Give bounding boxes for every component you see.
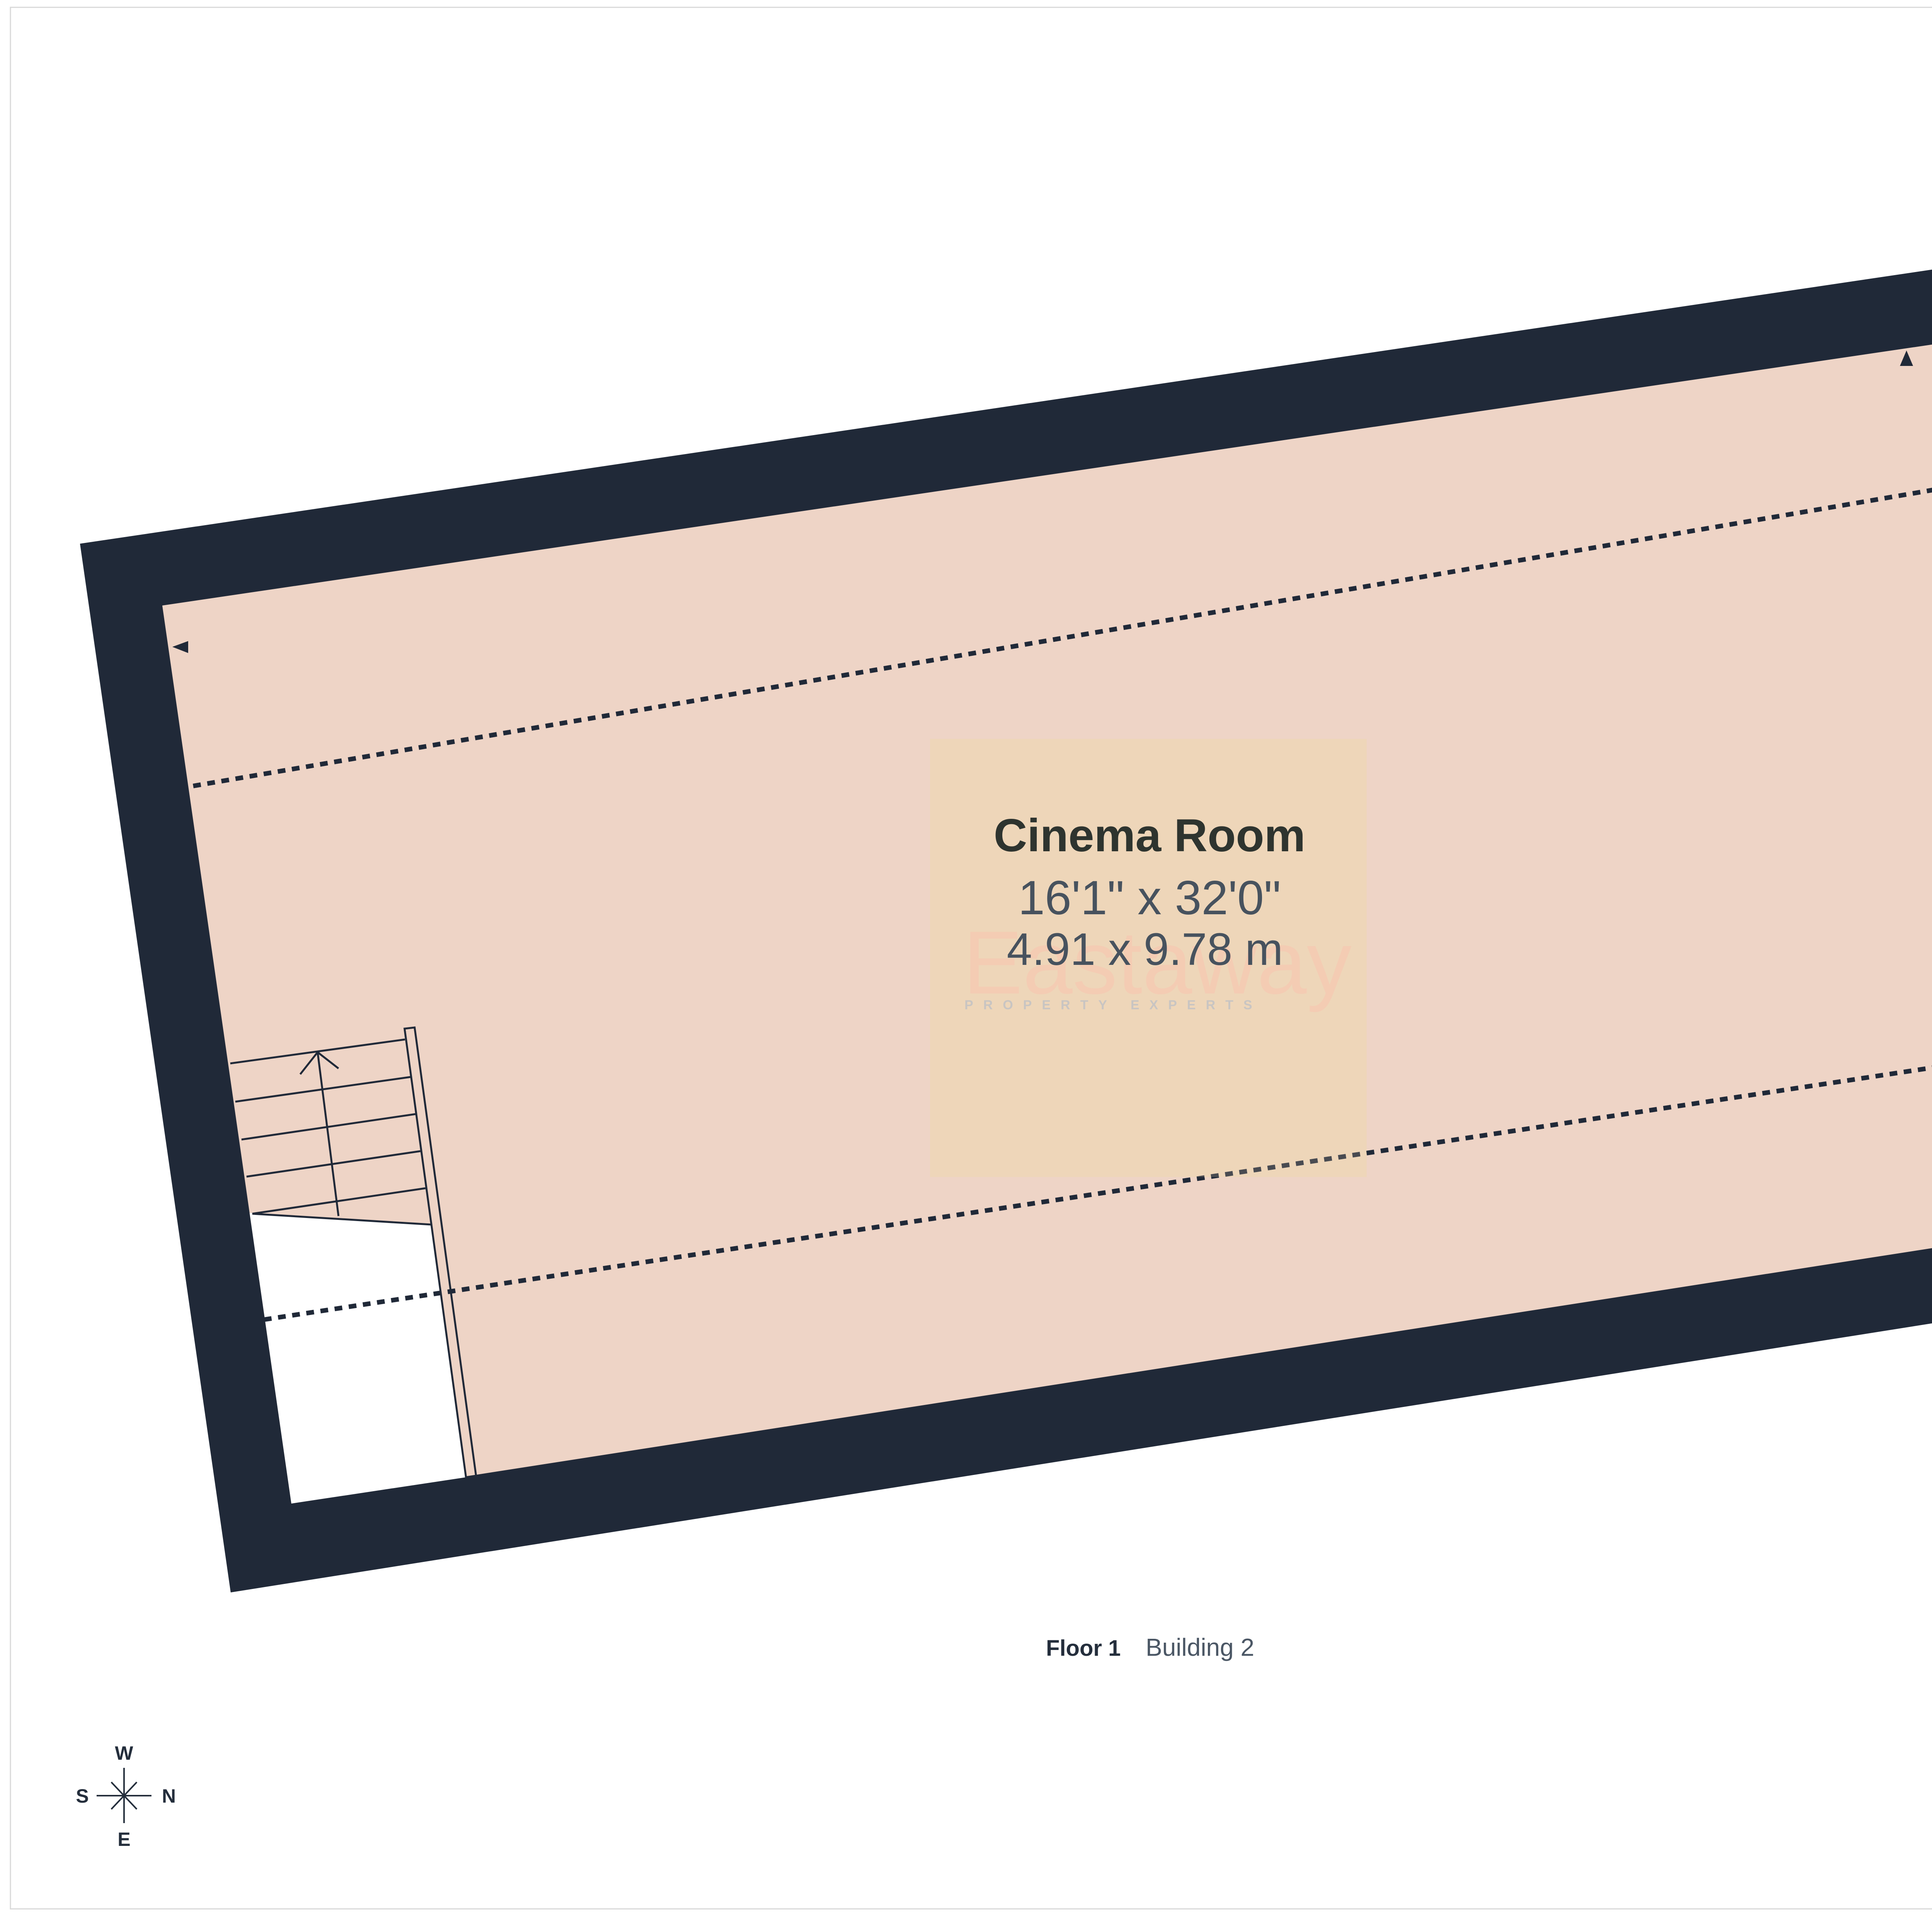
svg-text:4.91 x 9.78 m: 4.91 x 9.78 m (1007, 924, 1283, 975)
svg-text:16'1" x 32'0": 16'1" x 32'0" (1018, 871, 1281, 925)
svg-text:PROPERTY EXPERTS: PROPERTY EXPERTS (964, 998, 1262, 1012)
svg-text:S: S (76, 1785, 88, 1807)
svg-text:W: W (115, 1742, 133, 1764)
svg-text:E: E (117, 1829, 130, 1850)
svg-text:Cinema Room: Cinema Room (994, 810, 1306, 861)
svg-text:Floor 1: Floor 1 (1046, 1636, 1121, 1661)
svg-text:Building 2: Building 2 (1146, 1633, 1254, 1661)
svg-text:N: N (162, 1785, 176, 1807)
